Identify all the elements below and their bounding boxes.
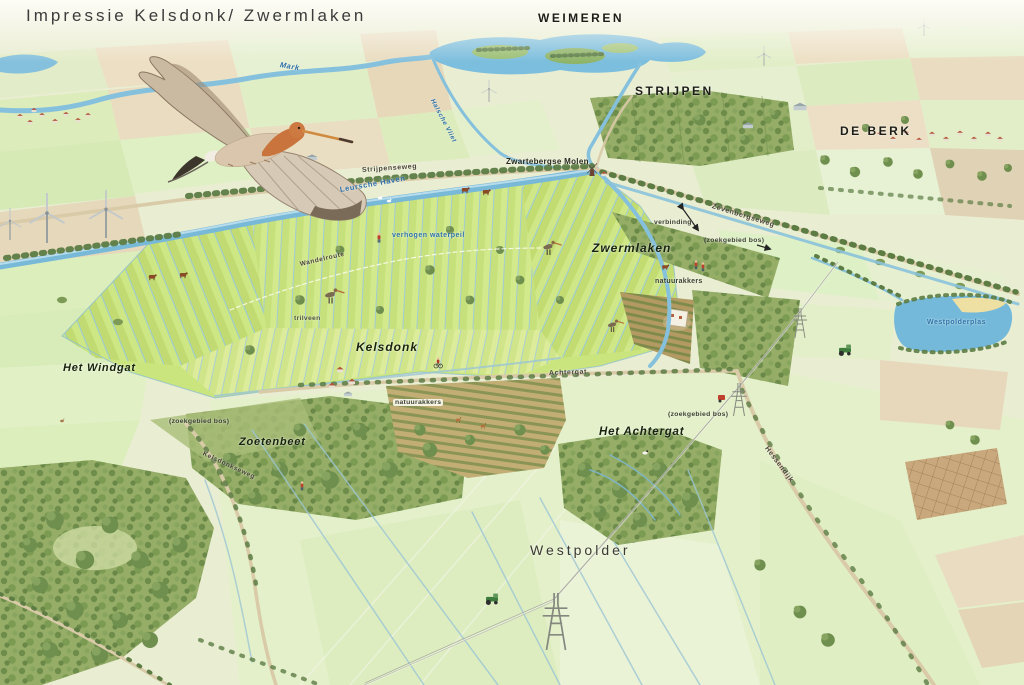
label-zwartebergse-molen: Zwartebergse Molen (506, 157, 589, 166)
label-natuurakkers-noord: natuurakkers (655, 278, 703, 285)
label-verhogen-waterpeil: verhogen waterpeil (392, 232, 465, 239)
label-zwermlaken: Zwermlaken (592, 241, 671, 255)
label-zoekgebied-bos-oost: (zoekgebied bos) (668, 411, 728, 418)
label-zoekgebied-bos-ne: (zoekgebied bos) (704, 237, 764, 244)
label-achtergat-road: Achtergat (549, 369, 587, 377)
map-title: Impressie Kelsdonk/ Zwermlaken (26, 6, 366, 26)
map-canvas: Impressie Kelsdonk/ Zwermlaken WEIMEREN … (0, 0, 1024, 685)
label-zoetenbeet: Zoetenbeet (239, 436, 306, 448)
label-trilveen: trilveen (294, 315, 321, 322)
label-zoekgebied-bos-west: (zoekgebied bos) (169, 418, 229, 425)
label-strijpen: STRIJPEN (635, 84, 714, 98)
label-het-windgat: Het Windgat (63, 362, 136, 374)
label-weimeren: WEIMEREN (538, 11, 624, 25)
label-kelsdonk: Kelsdonk (356, 340, 418, 354)
label-westpolder: Westpolder (530, 542, 631, 558)
label-de-berk: DE BERK (840, 124, 912, 138)
label-het-achtergat: Het Achtergat (599, 426, 684, 438)
label-natuurakkers-zuid: natuurakkers (393, 399, 443, 406)
label-verbinding: verbinding (654, 219, 692, 226)
map-illustration (0, 0, 1024, 685)
label-westpolderplas: Westpolderplas (927, 319, 986, 326)
